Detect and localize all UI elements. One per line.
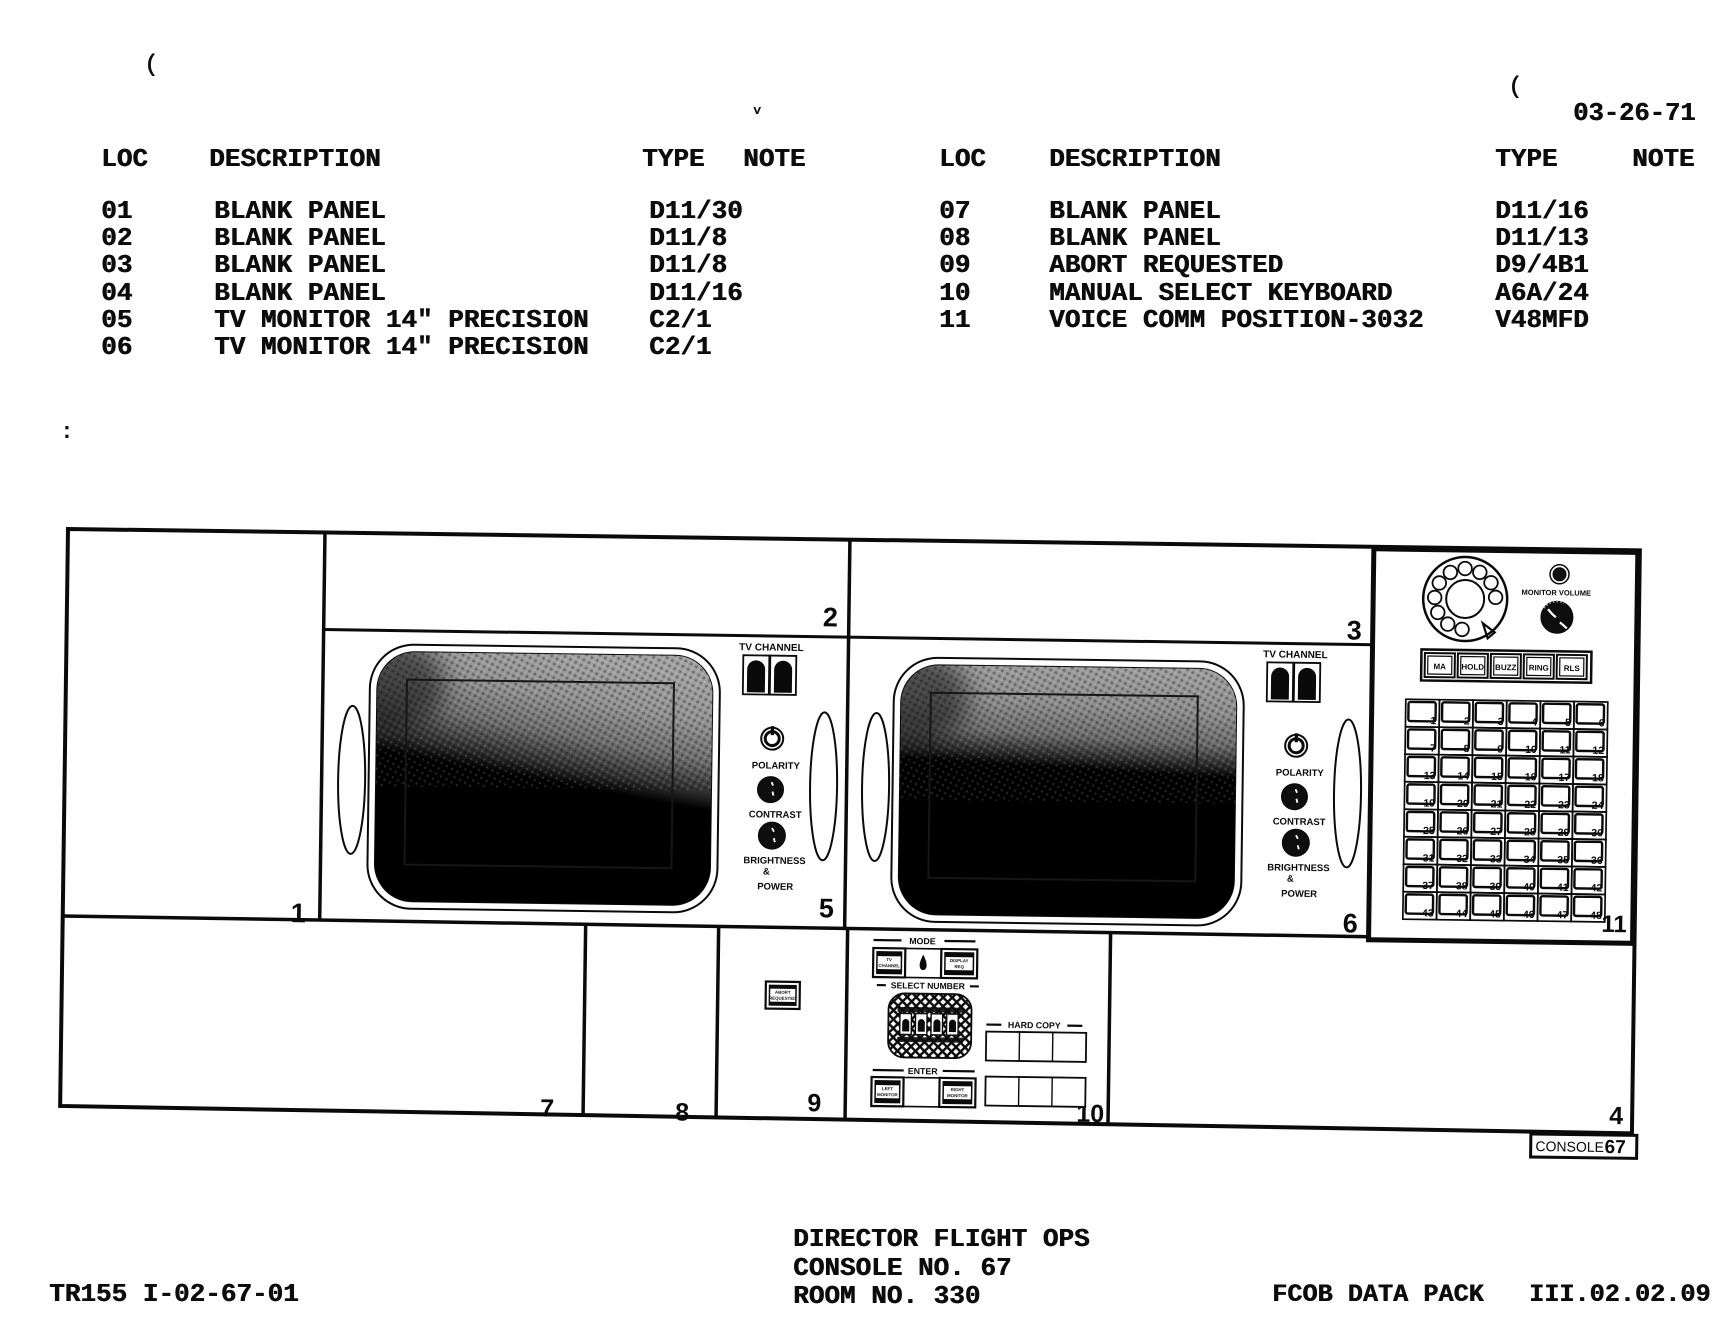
svg-text:POWER: POWER	[1281, 889, 1317, 900]
svg-text:POWER: POWER	[757, 881, 793, 892]
svg-text:LEFT: LEFT	[882, 1086, 893, 1091]
svg-text:31: 31	[1423, 852, 1435, 864]
svg-text:2: 2	[1464, 716, 1470, 728]
svg-text:1: 1	[1430, 715, 1436, 727]
svg-text:CONTRAST: CONTRAST	[749, 809, 802, 821]
svg-text:44: 44	[1455, 908, 1467, 920]
svg-text:5: 5	[1565, 717, 1571, 729]
svg-text:6: 6	[1343, 908, 1358, 938]
svg-text:9: 9	[1497, 743, 1503, 755]
svg-text:3: 3	[1347, 615, 1362, 645]
svg-text:POLARITY: POLARITY	[752, 760, 801, 772]
svg-text:41: 41	[1557, 882, 1569, 894]
svg-text:CONSOLE: CONSOLE	[1535, 1138, 1604, 1155]
svg-text:TV: TV	[886, 957, 892, 962]
svg-text:&: &	[1287, 874, 1294, 885]
svg-text:11: 11	[1559, 744, 1570, 756]
svg-text:23: 23	[1558, 799, 1570, 811]
svg-text:REQUESTED: REQUESTED	[769, 996, 796, 1001]
svg-text:5: 5	[819, 893, 834, 923]
svg-text:MA: MA	[1433, 662, 1446, 671]
svg-text:&: &	[763, 866, 770, 877]
svg-text:45: 45	[1489, 908, 1501, 920]
svg-text:22: 22	[1524, 799, 1536, 811]
svg-text:BRIGHTNESS: BRIGHTNESS	[743, 855, 805, 867]
svg-text:38: 38	[1456, 880, 1468, 892]
svg-text:16: 16	[1525, 771, 1537, 783]
svg-text:HARD COPY: HARD COPY	[1008, 1020, 1061, 1031]
svg-text:13: 13	[1424, 770, 1436, 782]
svg-text:43: 43	[1422, 907, 1434, 919]
svg-text:25: 25	[1423, 825, 1435, 837]
svg-text:CONTRAST: CONTRAST	[1273, 816, 1326, 828]
svg-text:2: 2	[823, 602, 838, 632]
svg-text:MONITOR VOLUME: MONITOR VOLUME	[1521, 588, 1591, 598]
svg-text:HOLD: HOLD	[1461, 662, 1484, 671]
svg-text:RLS: RLS	[1564, 664, 1581, 673]
svg-text:24: 24	[1592, 800, 1604, 812]
svg-text:POLARITY: POLARITY	[1276, 767, 1325, 779]
svg-text:MODE: MODE	[909, 936, 936, 946]
svg-text:ENTER: ENTER	[908, 1066, 939, 1076]
svg-text:18: 18	[1592, 772, 1604, 784]
svg-text:15: 15	[1491, 771, 1503, 783]
svg-text:1: 1	[291, 898, 306, 928]
svg-text:MONITOR: MONITOR	[947, 1093, 969, 1098]
svg-text:8: 8	[1464, 743, 1470, 755]
svg-text:DISPLAY: DISPLAY	[950, 958, 969, 963]
svg-text:12: 12	[1592, 745, 1604, 757]
svg-text:48: 48	[1590, 910, 1602, 922]
svg-text:42: 42	[1590, 882, 1602, 894]
svg-text:17: 17	[1558, 772, 1570, 784]
svg-text:4: 4	[1609, 1102, 1623, 1130]
svg-text:9: 9	[807, 1089, 821, 1117]
svg-text:32: 32	[1456, 853, 1468, 865]
svg-text:20: 20	[1457, 798, 1469, 810]
svg-text:40: 40	[1523, 881, 1535, 893]
svg-text:BUZZ: BUZZ	[1495, 663, 1517, 672]
svg-text:33: 33	[1490, 853, 1502, 865]
svg-text:28: 28	[1524, 826, 1536, 838]
svg-text:35: 35	[1557, 854, 1569, 866]
svg-text:7: 7	[1430, 743, 1436, 755]
svg-text:29: 29	[1558, 827, 1570, 839]
svg-text:7: 7	[540, 1094, 554, 1122]
svg-text:46: 46	[1523, 909, 1535, 921]
svg-text:39: 39	[1489, 881, 1501, 893]
svg-text:SELECT NUMBER: SELECT NUMBER	[891, 980, 966, 991]
svg-text:CHANNEL: CHANNEL	[878, 963, 900, 968]
svg-text:14: 14	[1457, 770, 1469, 782]
svg-text:TV CHANNEL: TV CHANNEL	[1263, 649, 1328, 661]
svg-text:37: 37	[1422, 880, 1434, 892]
svg-text:19: 19	[1423, 797, 1435, 809]
svg-text:3: 3	[1498, 716, 1504, 728]
svg-text:34: 34	[1524, 854, 1536, 866]
svg-text:47: 47	[1557, 909, 1569, 921]
svg-text:8: 8	[675, 1098, 689, 1126]
svg-text:RING: RING	[1529, 663, 1549, 672]
svg-text:MONITOR: MONITOR	[877, 1092, 899, 1097]
svg-text:4: 4	[1531, 716, 1537, 728]
svg-text:26: 26	[1457, 825, 1469, 837]
svg-text:21: 21	[1491, 798, 1503, 810]
svg-text:10: 10	[1525, 744, 1537, 756]
svg-text:ABORT: ABORT	[775, 990, 791, 995]
svg-text:30: 30	[1591, 827, 1603, 839]
svg-text:REQ: REQ	[954, 964, 964, 969]
svg-text:67: 67	[1604, 1137, 1625, 1158]
svg-text:RIGHT: RIGHT	[951, 1087, 965, 1092]
svg-text:36: 36	[1591, 855, 1603, 867]
svg-text:TV CHANNEL: TV CHANNEL	[739, 642, 804, 654]
svg-text:27: 27	[1490, 826, 1502, 838]
svg-text:6: 6	[1599, 717, 1605, 729]
svg-text:BRIGHTNESS: BRIGHTNESS	[1267, 862, 1329, 874]
